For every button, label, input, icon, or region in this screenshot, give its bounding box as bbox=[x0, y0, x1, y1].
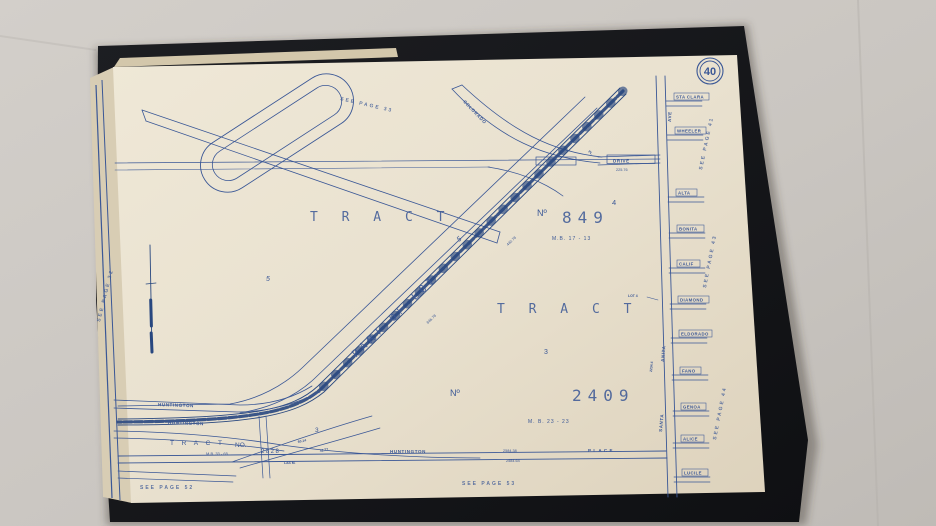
tract-2409-word: T R A C T bbox=[497, 302, 639, 317]
street-alice: ALICE bbox=[683, 437, 698, 442]
lot4-label: LOT 4 bbox=[628, 294, 638, 298]
huntington-place-suffix: P L A C E bbox=[588, 448, 613, 453]
street-wheeler: WHEELER bbox=[677, 129, 702, 134]
drive-label: DRIVE bbox=[613, 159, 630, 164]
street-bonita: BONITA bbox=[679, 227, 698, 232]
tract-849-number: 849 bbox=[562, 208, 609, 227]
street-sta-clara: STA CLARA bbox=[676, 95, 704, 100]
lot3-area-label: 3 bbox=[315, 427, 319, 434]
huntington-place-dim-top: 2584.38 bbox=[503, 449, 517, 453]
street-calif: CALIF bbox=[679, 262, 694, 267]
tract-849-no: Nº bbox=[537, 208, 547, 218]
tract-2828-no: NO. bbox=[235, 442, 247, 449]
street-fano: FANO bbox=[682, 369, 696, 374]
see-page-52: SEE PAGE 52 bbox=[140, 485, 194, 491]
tract-2828-word: T R A C T bbox=[170, 440, 225, 447]
street-alta: ALTA bbox=[678, 191, 690, 196]
drive-dim: 225.76 bbox=[616, 168, 628, 172]
photo-canvas: 40 SEE PAGE 33 SEE PAGE 32 SEE PAGE 52 S… bbox=[0, 0, 936, 526]
huntington-place-name: HUNTINGTON bbox=[390, 449, 426, 454]
street-genoa: GENOA bbox=[683, 405, 701, 410]
tract-2828-mapbook: M.B. 33 - 65 bbox=[206, 451, 229, 456]
tract-2409-lot3: 3 bbox=[544, 349, 548, 356]
street-lucile: LUCILE bbox=[684, 471, 702, 476]
huntington-place-dim-bottom: 2584.64 bbox=[506, 459, 520, 463]
page-number: 40 bbox=[704, 66, 716, 78]
tract-2409-no: Nº bbox=[450, 388, 460, 398]
junction-dim-3: LAS M. bbox=[284, 461, 296, 465]
tract-849-lot-sup: 4 bbox=[612, 198, 616, 207]
tract-2828-number: 2828 bbox=[261, 449, 280, 455]
tract-849-mapbook: M.B. 17 - 13 bbox=[552, 236, 591, 242]
tract-2409-mapbook: M. B. 23 - 23 bbox=[528, 419, 570, 425]
map-book-photo: 40 SEE PAGE 33 SEE PAGE 32 SEE PAGE 52 S… bbox=[0, 0, 936, 526]
tract-849-word: T R A C T bbox=[310, 210, 452, 225]
tract-2409-number: 2409 bbox=[572, 386, 635, 405]
street-diamond: DIAMOND bbox=[680, 298, 703, 303]
see-page-53: SEE PAGE 53 bbox=[462, 481, 516, 487]
ave-label: AVE bbox=[667, 111, 672, 122]
street-eldorado: ELDORADO bbox=[681, 332, 709, 337]
lot5-area-label: 5 bbox=[266, 276, 270, 283]
